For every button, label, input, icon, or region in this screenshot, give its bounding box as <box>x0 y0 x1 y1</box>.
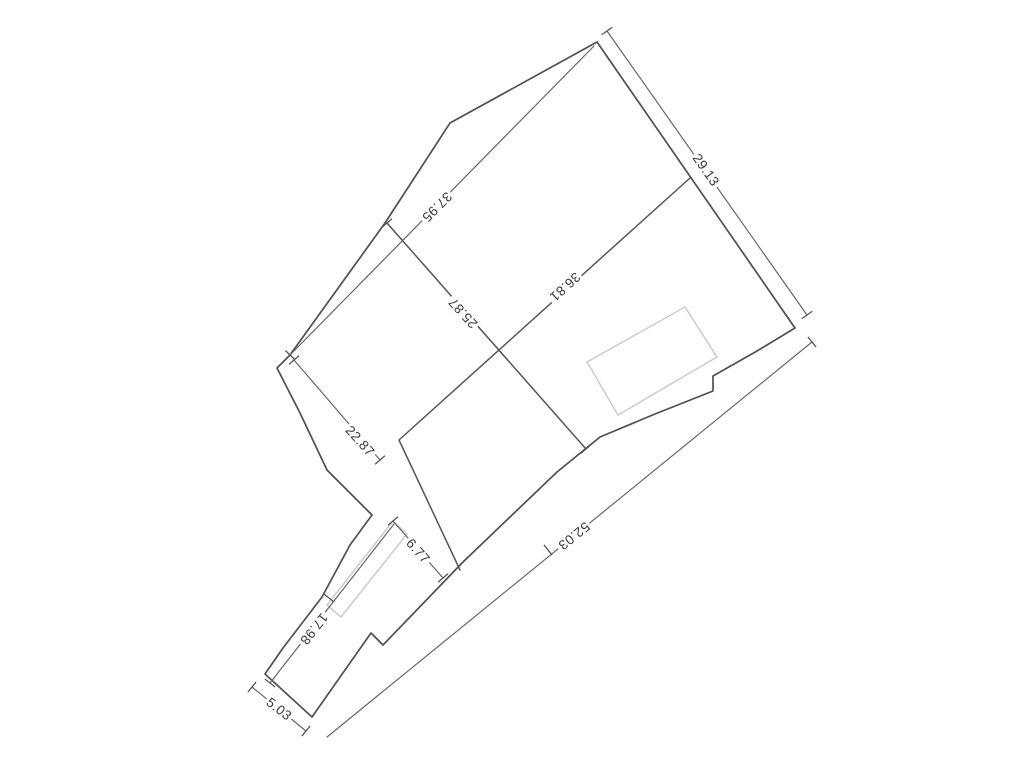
tick-mark <box>802 311 813 318</box>
building-footprints <box>327 307 717 617</box>
building-footprint-main <box>587 307 717 415</box>
tick-mark <box>602 27 613 34</box>
parcel-boundary <box>265 42 795 717</box>
tick-mark <box>302 726 310 736</box>
dimension-line-17-98 <box>270 524 394 683</box>
building-footprint-strip <box>327 521 407 617</box>
lot-division-lines <box>387 178 690 570</box>
tick-mark <box>808 337 816 347</box>
tick-mark <box>248 682 256 692</box>
lot-line-25-87 <box>387 223 586 449</box>
tick-mark <box>375 456 385 465</box>
dimension-ticks <box>248 27 816 736</box>
plan-canvas: 29.13 37.95 25.87 36.81 22.87 6.77 17.98… <box>0 0 1024 768</box>
parcel-plan-svg <box>0 0 1024 768</box>
dimension-lines <box>252 31 812 737</box>
lot-line-36-81 <box>399 178 690 570</box>
tick-mark <box>289 356 299 365</box>
tick-mark <box>544 545 552 555</box>
